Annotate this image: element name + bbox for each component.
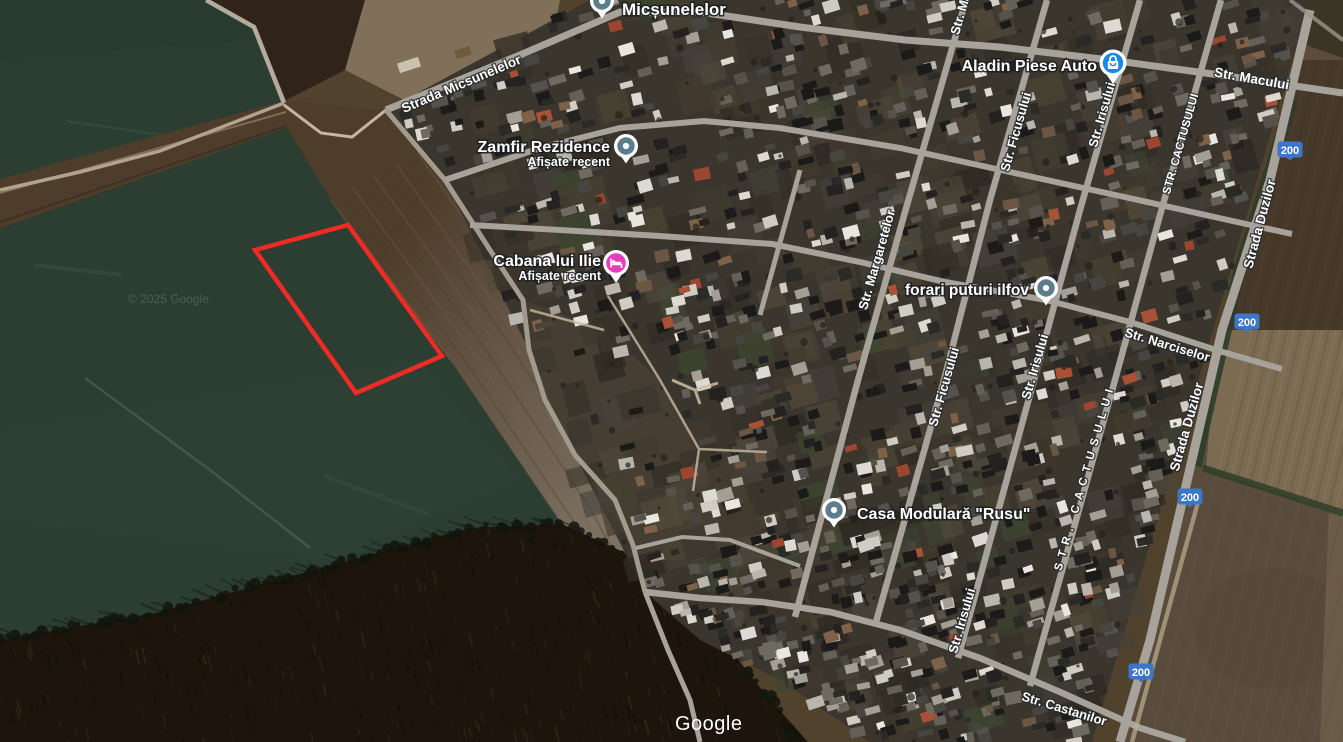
svg-text:Afișate recent: Afișate recent (518, 269, 602, 283)
svg-text:200: 200 (1238, 317, 1256, 329)
svg-text:Afișate recent: Afișate recent (527, 155, 611, 169)
svg-text:© 2025 Google: © 2025 Google (128, 292, 209, 306)
svg-text:Zamfir Rezidence: Zamfir Rezidence (478, 139, 611, 156)
svg-text:200: 200 (1132, 667, 1150, 679)
svg-text:Micșunelelor: Micșunelelor (622, 0, 726, 19)
svg-text:Cabana lui Ilie: Cabana lui Ilie (493, 253, 601, 270)
svg-text:Aladin Piese Auto: Aladin Piese Auto (962, 58, 1098, 75)
svg-text:200: 200 (1181, 492, 1199, 504)
svg-text:forari puturi ilfov: forari puturi ilfov (905, 282, 1029, 299)
svg-text:200: 200 (1281, 145, 1299, 157)
svg-text:Google: Google (675, 713, 743, 735)
svg-text:Casa Modulară "Rusu": Casa Modulară "Rusu" (857, 506, 1030, 523)
